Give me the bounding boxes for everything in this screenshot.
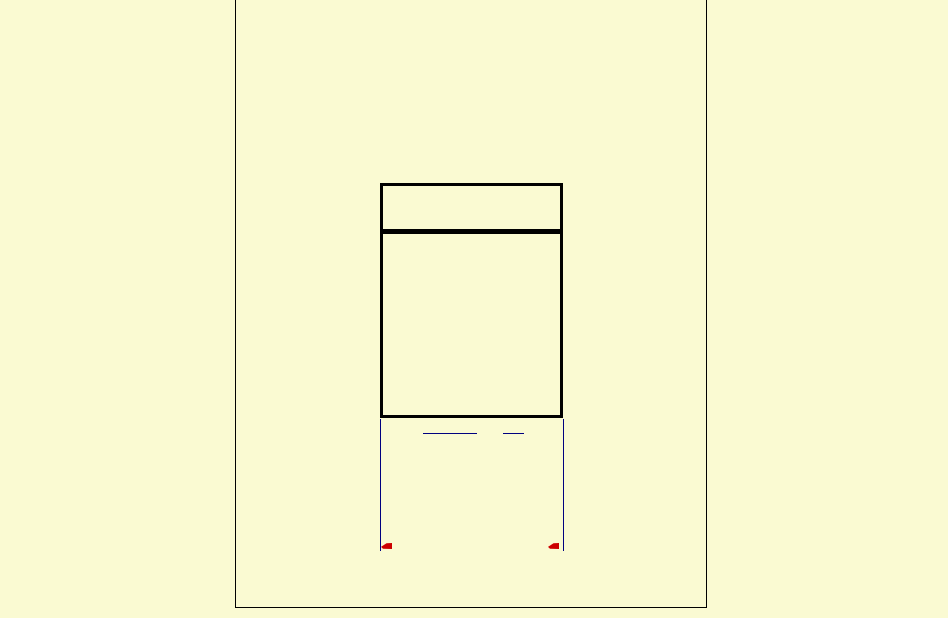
link-underline-1[interactable] [423, 433, 477, 434]
page-canvas [0, 0, 948, 618]
left-vertical-rule [380, 419, 381, 551]
bordered-table [380, 183, 563, 418]
table-header-cell [383, 186, 560, 229]
right-vertical-rule [563, 419, 564, 551]
link-underline-2[interactable] [503, 433, 524, 434]
table-body-cell [383, 234, 560, 415]
